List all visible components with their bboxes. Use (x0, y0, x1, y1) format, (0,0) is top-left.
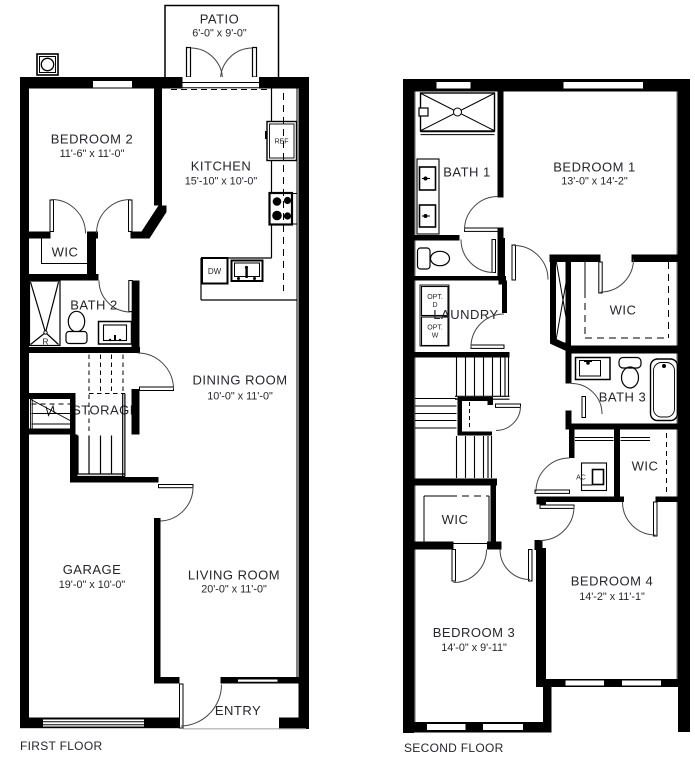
svg-text:14'-0" x 9'-11": 14'-0" x 9'-11" (441, 642, 507, 654)
svg-text:OPT.: OPT. (427, 325, 443, 332)
svg-text:PATIO: PATIO (200, 12, 240, 27)
svg-text:STORAGE: STORAGE (72, 403, 139, 418)
svg-text:FIRST FLOOR: FIRST FLOOR (20, 739, 102, 753)
svg-text:LAUNDRY: LAUNDRY (433, 307, 498, 322)
svg-text:BATH 1: BATH 1 (443, 165, 491, 180)
svg-text:WIC: WIC (52, 245, 79, 260)
svg-text:GARAGE: GARAGE (63, 562, 122, 577)
svg-text:REF: REF (275, 139, 289, 146)
svg-text:15'-10" x 10'-0": 15'-10" x 10'-0" (185, 176, 258, 188)
svg-text:SECOND FLOOR: SECOND FLOOR (404, 741, 504, 755)
svg-text:AC: AC (576, 475, 586, 482)
svg-text:19'-0" x 10'-0": 19'-0" x 10'-0" (59, 579, 126, 591)
svg-text:BEDROOM 2: BEDROOM 2 (51, 132, 134, 147)
svg-text:BEDROOM 3: BEDROOM 3 (433, 625, 516, 640)
svg-text:WIC: WIC (610, 303, 637, 318)
svg-text:11'-6" x 11'-0": 11'-6" x 11'-0" (60, 148, 125, 160)
svg-text:W: W (432, 333, 439, 340)
svg-text:KITCHEN: KITCHEN (191, 159, 252, 174)
svg-text:R: R (42, 337, 48, 347)
svg-text:BEDROOM 4: BEDROOM 4 (571, 574, 654, 589)
svg-text:WIC: WIC (442, 512, 469, 527)
svg-text:DW: DW (208, 267, 222, 276)
svg-text:WIC: WIC (632, 459, 659, 474)
svg-text:14'-2" x 11'-1": 14'-2" x 11'-1" (579, 591, 645, 603)
svg-text:LIVING ROOM: LIVING ROOM (188, 568, 280, 583)
svg-text:OPT.: OPT. (427, 294, 443, 301)
svg-text:20'-0" x 11'-0": 20'-0" x 11'-0" (201, 584, 267, 596)
svg-text:13'-0" x 14'-2": 13'-0" x 14'-2" (561, 176, 628, 188)
svg-text:ENTRY: ENTRY (215, 703, 261, 718)
svg-text:6'-0" x 9'-0": 6'-0" x 9'-0" (192, 28, 247, 40)
svg-text:BATH 3: BATH 3 (599, 390, 647, 405)
svg-text:BEDROOM 1: BEDROOM 1 (553, 160, 636, 175)
svg-text:DINING ROOM: DINING ROOM (192, 373, 287, 388)
svg-text:10'-0" x 11'-0": 10'-0" x 11'-0" (207, 391, 273, 403)
